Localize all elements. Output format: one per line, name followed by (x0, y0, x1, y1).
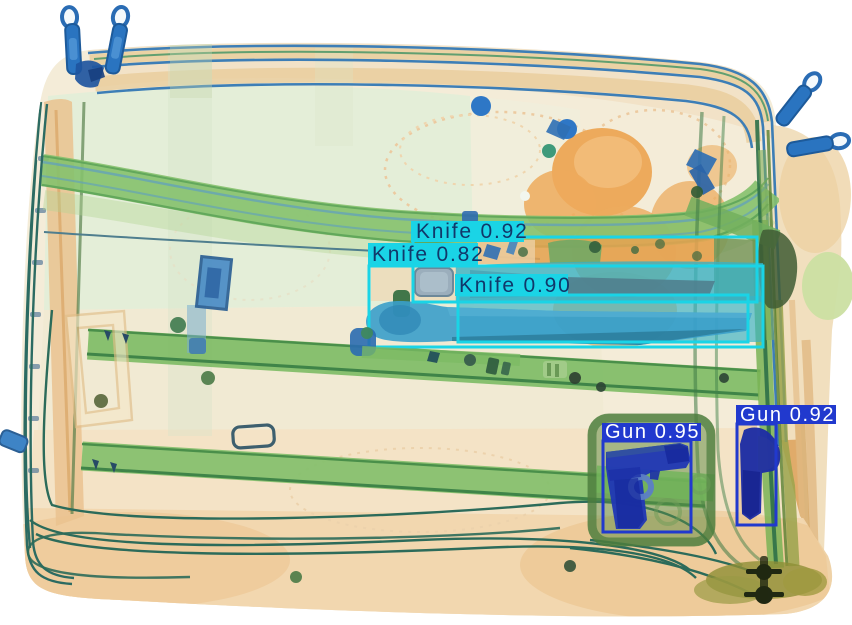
svg-text:Knife 0.90: Knife 0.90 (459, 274, 572, 297)
svg-text:Gun 0.95: Gun 0.95 (605, 421, 700, 443)
svg-text:Knife 0.82: Knife 0.82 (372, 243, 485, 266)
svg-text:Gun 0.92: Gun 0.92 (740, 404, 835, 426)
svg-text:Knife 0.92: Knife 0.92 (416, 220, 529, 243)
